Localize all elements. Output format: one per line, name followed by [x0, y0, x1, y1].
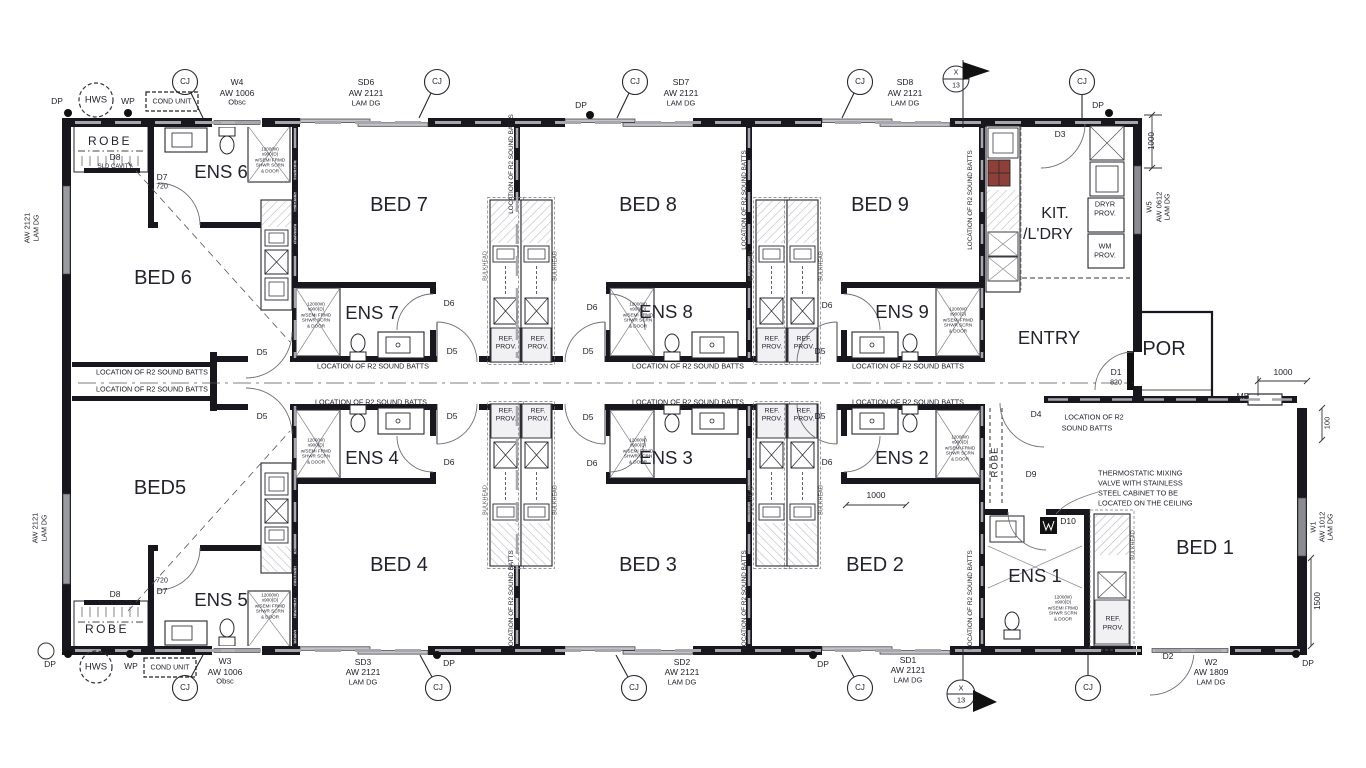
floor-plan-drawing	[0, 0, 1366, 768]
ensuite-row-top-group	[217, 118, 985, 378]
ens6-robe-group	[74, 118, 292, 342]
porch-outline	[1141, 312, 1212, 396]
floor-plan-canvas: BED 6BED 7BED 8BED 9BED5BED 4BED 3BED 2B…	[0, 0, 1366, 768]
